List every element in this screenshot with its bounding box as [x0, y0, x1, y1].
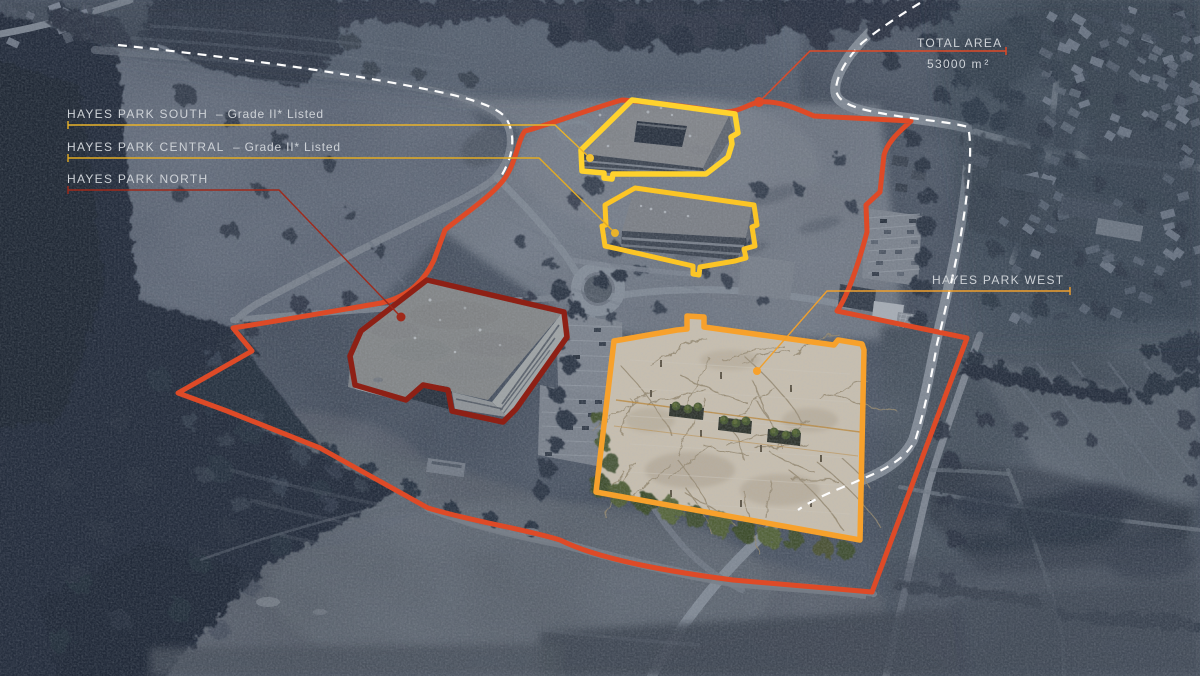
svg-text:TOTAL AREA: TOTAL AREA: [917, 36, 1002, 50]
svg-text:– Grade II* Listed: – Grade II* Listed: [216, 107, 324, 121]
svg-text:HAYES PARK CENTRAL: HAYES PARK CENTRAL: [67, 140, 225, 154]
svg-text:53000 m²: 53000 m²: [927, 57, 990, 71]
svg-text:HAYES PARK SOUTH: HAYES PARK SOUTH: [67, 107, 208, 121]
svg-text:HAYES PARK NORTH: HAYES PARK NORTH: [67, 172, 209, 186]
svg-text:HAYES PARK WEST: HAYES PARK WEST: [932, 273, 1064, 287]
svg-text:– Grade II* Listed: – Grade II* Listed: [233, 140, 341, 154]
